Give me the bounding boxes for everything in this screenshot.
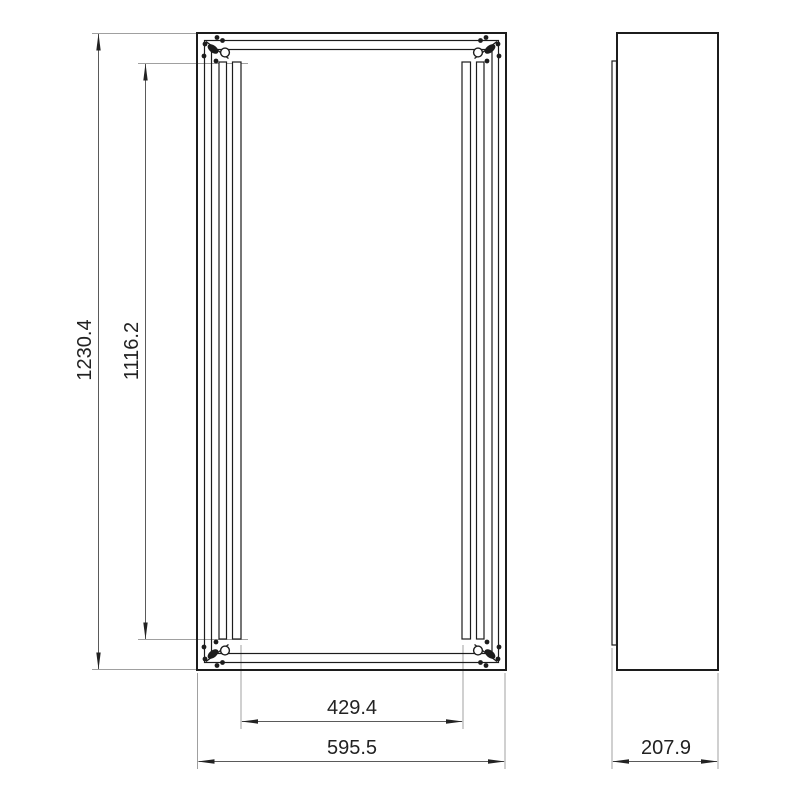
side-view-body bbox=[617, 33, 718, 670]
dimension-value-overall-width: 595.5 bbox=[327, 737, 377, 759]
mounting-rail-left-outer bbox=[219, 62, 227, 639]
side-view-front-panel-edge bbox=[612, 61, 617, 645]
dimension-overall-depth: 207.9 bbox=[612, 737, 718, 764]
front-view-outer-frame bbox=[197, 33, 506, 670]
front-view-opening bbox=[212, 50, 493, 654]
corner-fitting-top-left bbox=[202, 35, 230, 63]
dimension-value-overall-depth: 207.9 bbox=[641, 737, 691, 759]
corner-fitting-bottom-right bbox=[474, 640, 502, 668]
arrowhead-up bbox=[96, 34, 100, 51]
dimension-value-rail-length: 1116.2 bbox=[121, 322, 143, 380]
arrowhead-right bbox=[446, 719, 463, 723]
technical-drawing-canvas: 1230.4 1116.2 429.4 595.5 20 bbox=[0, 0, 800, 800]
corner-fitting-bottom-left bbox=[202, 640, 230, 668]
dimension-rail-length: 1116.2 bbox=[121, 64, 148, 640]
arrowhead-right bbox=[488, 759, 505, 763]
mounting-rail-right-outer bbox=[477, 62, 485, 639]
front-view-inner-frame bbox=[205, 41, 499, 663]
arrowhead-left bbox=[612, 759, 629, 763]
front-view bbox=[197, 33, 506, 670]
mounting-rail-right-inner bbox=[462, 62, 471, 639]
arrowhead-right bbox=[701, 759, 718, 763]
extension-lines bbox=[92, 34, 718, 770]
arrowhead-left bbox=[241, 719, 258, 723]
dimension-drawing-svg: 1230.4 1116.2 429.4 595.5 20 bbox=[0, 0, 800, 800]
dimension-value-overall-height: 1230.4 bbox=[74, 319, 96, 380]
dimension-rail-spacing: 429.4 bbox=[241, 697, 463, 724]
arrowhead-left bbox=[198, 759, 215, 763]
arrowhead-down bbox=[143, 623, 147, 640]
dimension-value-rail-spacing: 429.4 bbox=[327, 697, 377, 719]
mounting-rail-left-inner bbox=[233, 62, 242, 639]
side-view bbox=[612, 33, 718, 670]
dimension-overall-height: 1230.4 bbox=[74, 34, 101, 670]
corner-fitting-top-right bbox=[474, 35, 502, 63]
arrowhead-down bbox=[96, 653, 100, 670]
arrowhead-up bbox=[143, 64, 147, 81]
dimensions: 1230.4 1116.2 429.4 595.5 20 bbox=[74, 34, 718, 764]
dimension-overall-width: 595.5 bbox=[198, 737, 506, 764]
